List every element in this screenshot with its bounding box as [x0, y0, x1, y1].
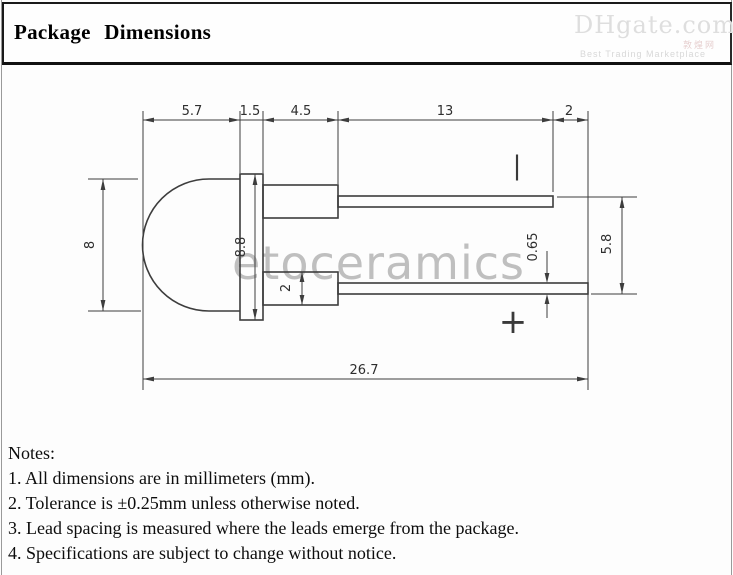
dimension-labels: 5.7 1.5 4.5 13 2 8 8.8 2 0.65 5.8 26.7: [83, 104, 615, 378]
led-outline: [143, 174, 589, 320]
cathode-minus-mark: |: [513, 151, 522, 181]
polarity-marks: | +: [499, 151, 528, 342]
dim-label-lead-emerge-width: 2: [279, 284, 294, 292]
anode-lead-wide-section: [263, 272, 338, 305]
note-item-3: 3. Lead spacing is measured where the le…: [8, 516, 519, 541]
cathode-lead: [338, 196, 553, 207]
cathode-lead-wide-section: [263, 185, 338, 218]
note-item-2: 2. Tolerance is ±0.25mm unless otherwise…: [8, 491, 519, 516]
anode-plus-mark: +: [499, 302, 528, 342]
package-dimensions-sheet: Package Dimensions DHgate.com 敦煌网 Best T…: [0, 0, 733, 575]
dim-label-wide-lead-length: 4.5: [291, 104, 312, 119]
dim-label-flange-diameter: 8.8: [234, 237, 249, 258]
dim-label-lead-outer-span: 5.8: [600, 234, 615, 255]
note-item-1: 1. All dimensions are in millimeters (mm…: [8, 466, 519, 491]
dim-label-flange-thickness: 1.5: [240, 104, 261, 119]
led-dimension-drawing: 5.7 1.5 4.5 13 2 8 8.8 2 0.65 5.8 26.7 |…: [0, 0, 733, 440]
dimension-lines: [88, 111, 637, 390]
dim-label-dome-length: 5.7: [182, 104, 203, 119]
dimension-arrowheads: [101, 118, 625, 382]
note-item-4: 4. Specifications are subject to change …: [8, 541, 519, 566]
notes-heading: Notes:: [8, 441, 519, 466]
dim-label-dome-diameter: 8: [83, 241, 98, 249]
dim-label-lead-thickness: 0.65: [526, 233, 541, 262]
anode-lead: [338, 283, 588, 294]
dim-label-lead-extra-length: 2: [565, 104, 573, 119]
notes-section: Notes: 1. All dimensions are in millimet…: [8, 441, 519, 566]
dim-label-lead-length: 13: [437, 104, 454, 119]
dim-label-overall-length: 26.7: [350, 363, 379, 378]
led-dome: [143, 179, 240, 311]
